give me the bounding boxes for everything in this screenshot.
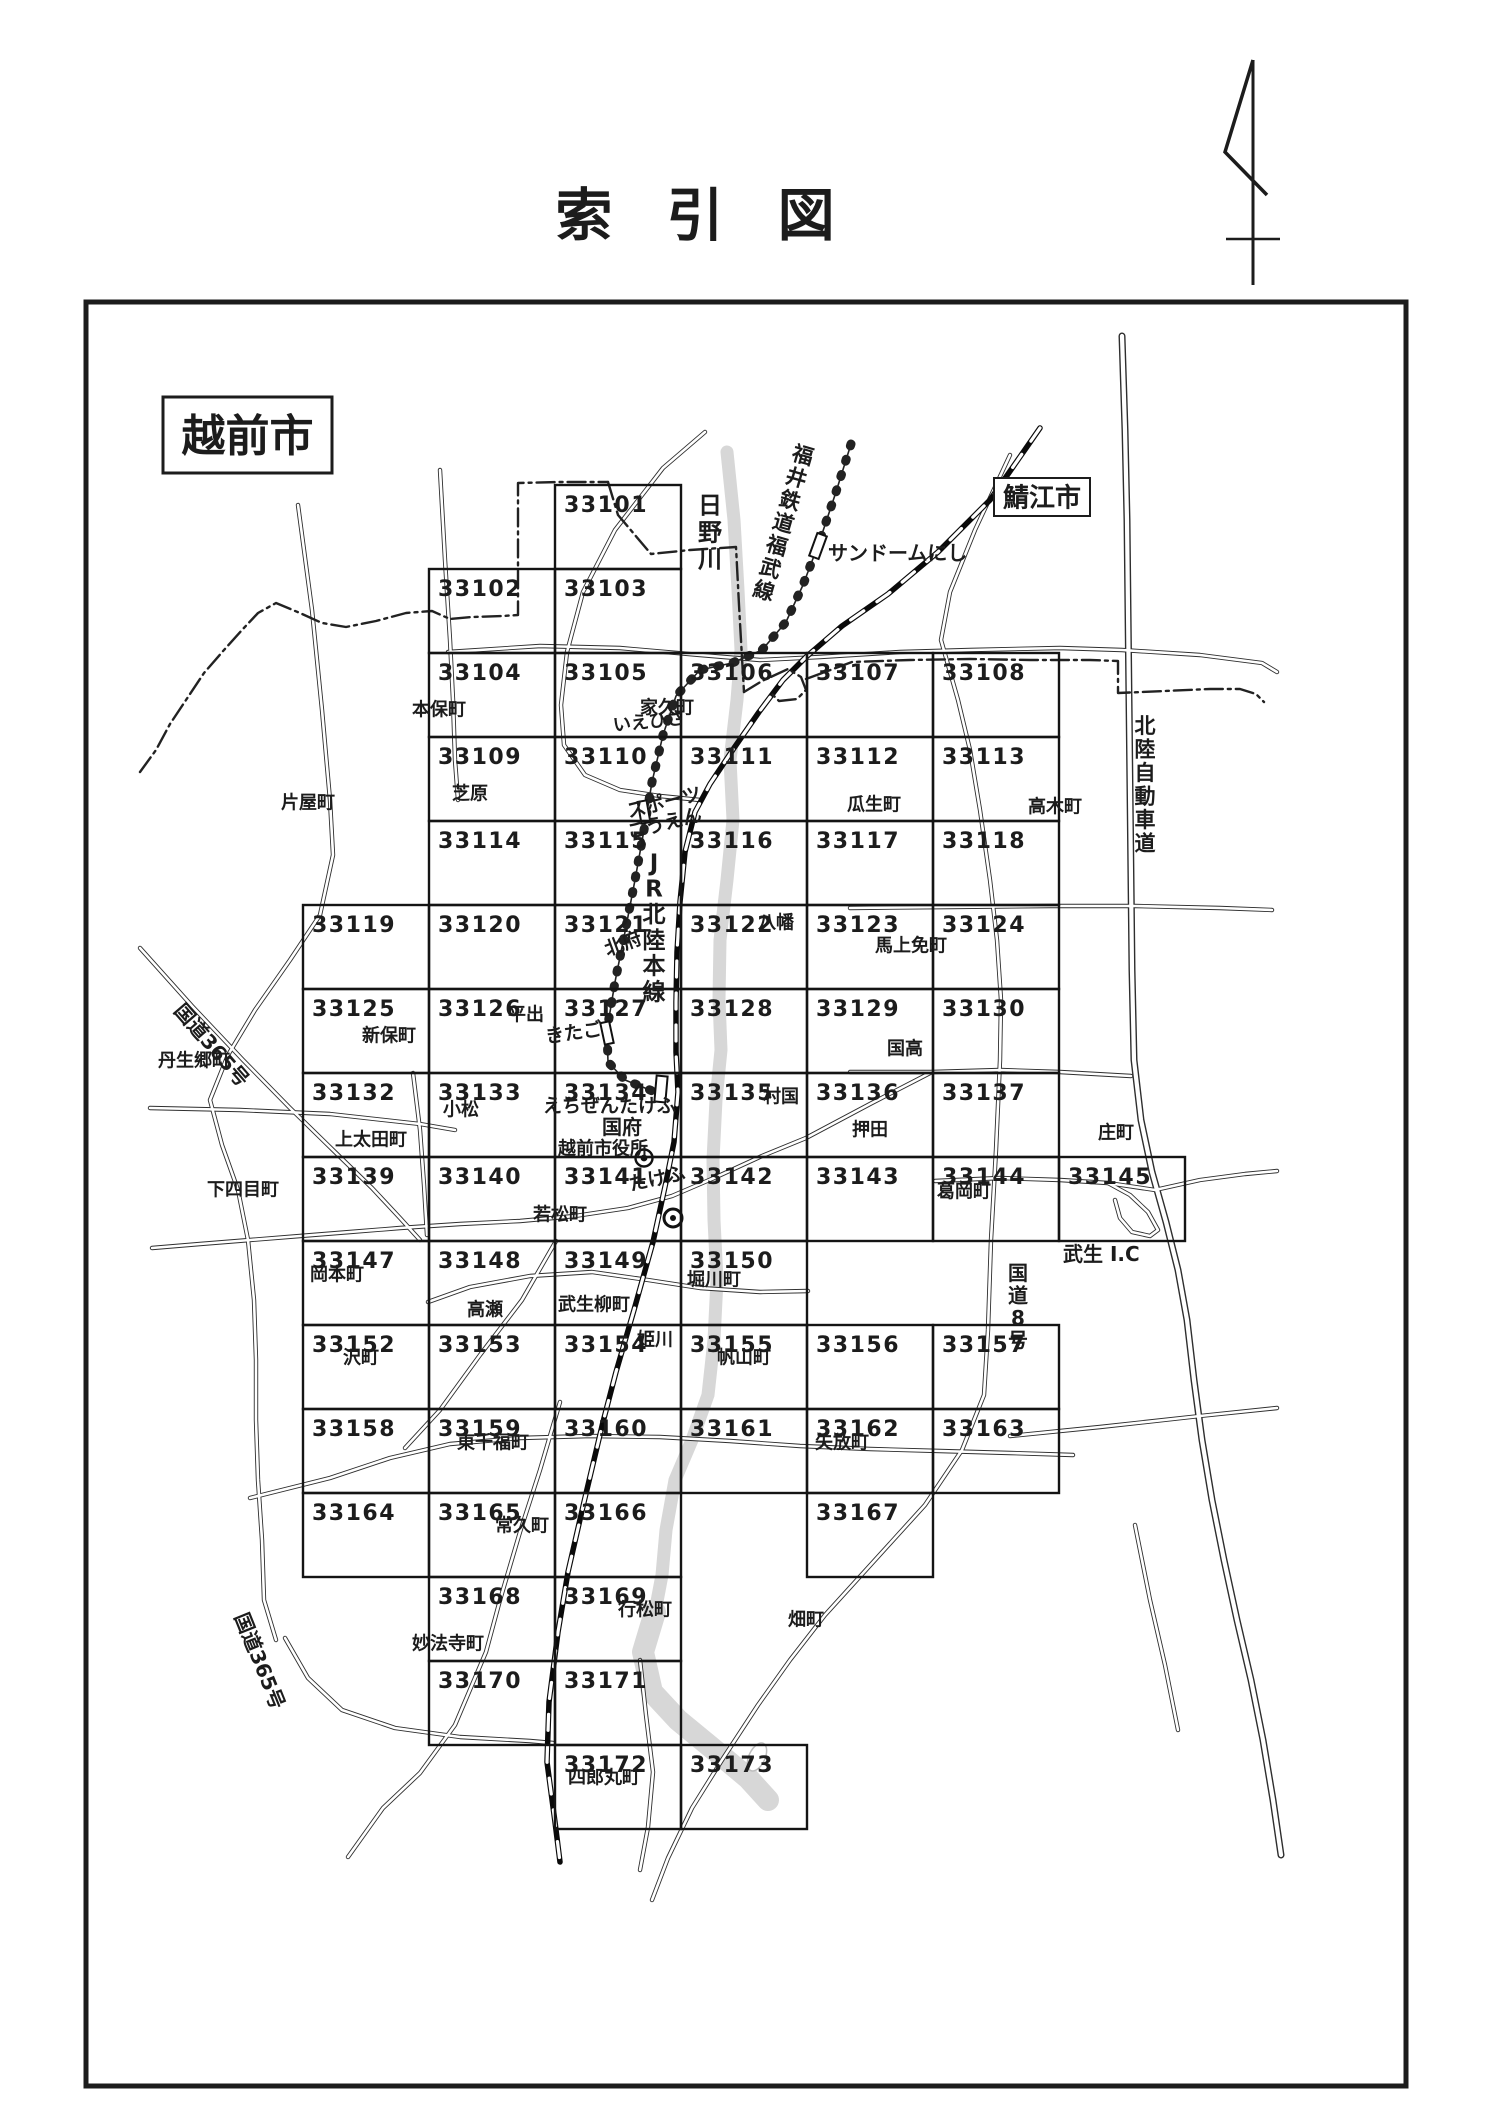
place-label: サンドームにし <box>828 541 967 565</box>
grid-cell-label-33109: 33109 <box>438 745 522 770</box>
grid-cell-label-33119: 33119 <box>312 913 396 938</box>
place-label: 瓜生町 <box>847 793 901 815</box>
place-label: 下四目町 <box>207 1179 279 1200</box>
svg-text:常久町: 常久町 <box>495 1514 549 1536</box>
place-label: 国道8号 <box>1008 1261 1028 1352</box>
svg-text:道: 道 <box>1135 832 1156 856</box>
svg-text:陸: 陸 <box>643 928 666 954</box>
grid-cell-label-33149: 33149 <box>564 1249 648 1274</box>
place-label: 葛岡町 <box>936 1181 991 1202</box>
svg-text:小松: 小松 <box>443 1098 479 1120</box>
place-label: 国府 <box>602 1115 642 1139</box>
place-label: 若松町 <box>532 1203 587 1225</box>
place-label: 八幡 <box>758 911 794 933</box>
place-label: 北陸自動車道 <box>1135 714 1156 856</box>
svg-text:北: 北 <box>1135 714 1156 738</box>
svg-text:新保町: 新保町 <box>362 1024 416 1046</box>
place-label: 上太田町 <box>335 1128 407 1150</box>
grid-cell-label-33173: 33173 <box>690 1753 774 1778</box>
svg-text:芝原: 芝原 <box>452 782 488 804</box>
svg-text:本: 本 <box>643 954 666 980</box>
svg-text:動: 動 <box>1135 784 1156 808</box>
place-label: 国高 <box>887 1037 923 1059</box>
svg-text:馬上免町: 馬上免町 <box>875 934 947 956</box>
svg-text:線: 線 <box>643 979 666 1006</box>
svg-text:川: 川 <box>698 545 722 573</box>
svg-text:瓜生町: 瓜生町 <box>847 793 901 815</box>
svg-text:国高: 国高 <box>887 1037 923 1059</box>
svg-text:野: 野 <box>698 518 722 546</box>
svg-text:村国: 村国 <box>763 1085 799 1107</box>
svg-text:行松町: 行松町 <box>617 1598 672 1620</box>
grid-cell-label-33158: 33158 <box>312 1417 396 1442</box>
grid-cell-label-33117: 33117 <box>816 829 900 854</box>
grid-cell-label-33171: 33171 <box>564 1669 648 1694</box>
svg-text:上太田町: 上太田町 <box>335 1128 407 1150</box>
place-label: 沢町 <box>343 1346 379 1368</box>
svg-text:片屋町: 片屋町 <box>281 791 335 813</box>
place-label: 丹生郷町 <box>158 1049 230 1071</box>
grid-cell-label-33106: 33106 <box>690 661 774 686</box>
place-label: 帆山町 <box>717 1346 771 1368</box>
svg-text:国: 国 <box>1008 1261 1028 1285</box>
svg-text:越前市役所: 越前市役所 <box>557 1137 648 1159</box>
place-label: 東千福町 <box>457 1431 529 1453</box>
grid-cell-label-33107: 33107 <box>816 661 900 686</box>
grid-cell-label-33170: 33170 <box>438 1669 522 1694</box>
grid-cell-label-33164: 33164 <box>312 1501 396 1526</box>
svg-text:沢町: 沢町 <box>343 1346 379 1368</box>
place-label: 姫川 <box>637 1328 673 1350</box>
grid-cell-label-33116: 33116 <box>690 829 774 854</box>
svg-text:下四目町: 下四目町 <box>207 1179 279 1200</box>
place-label: 本保町 <box>412 698 466 720</box>
grid-cell-label-33124: 33124 <box>942 913 1026 938</box>
grid-cell-label-33129: 33129 <box>816 997 900 1022</box>
place-label: 庄町 <box>1098 1121 1134 1143</box>
grid-cell-label-33135: 33135 <box>690 1081 774 1106</box>
grid-cell-label-33154: 33154 <box>564 1333 648 1358</box>
grid-cell-label-33148: 33148 <box>438 1249 522 1274</box>
place-label: 岡本町 <box>310 1263 364 1285</box>
svg-text:姫川: 姫川 <box>637 1328 673 1350</box>
place-label: 日野川 <box>698 492 722 574</box>
place-label: 妙法寺町 <box>412 1632 484 1654</box>
svg-text:四郎丸町: 四郎丸町 <box>568 1766 640 1788</box>
place-label: 矢放町 <box>815 1431 869 1453</box>
svg-text:日: 日 <box>698 492 722 520</box>
place-label: 武生 I.C <box>1063 1242 1140 1266</box>
place-label: 押田 <box>852 1118 888 1140</box>
grid-cell-label-33143: 33143 <box>816 1165 900 1190</box>
grid-cell-label-33111: 33111 <box>690 745 774 770</box>
city-box-label: 越前市 <box>182 411 314 462</box>
place-label: 常久町 <box>495 1514 549 1536</box>
svg-text:北: 北 <box>643 902 666 928</box>
grid-cell-label-33167: 33167 <box>816 1501 900 1526</box>
svg-text:J: J <box>648 851 659 877</box>
place-label: 高瀬 <box>467 1298 503 1320</box>
grid-cell-label-33103: 33103 <box>564 577 648 602</box>
svg-text:国府: 国府 <box>602 1115 642 1139</box>
grid-cell-label-33145: 33145 <box>1068 1165 1152 1190</box>
svg-text:東千福町: 東千福町 <box>457 1431 529 1453</box>
grid-cell-label-33160: 33160 <box>564 1417 648 1442</box>
grid-cell-label-33168: 33168 <box>438 1585 522 1610</box>
grid-cell-label-33112: 33112 <box>816 745 900 770</box>
city-box-label: 鯖江市 <box>1003 482 1081 513</box>
grid-cell-label-33125: 33125 <box>312 997 396 1022</box>
grid-cell-label-33137: 33137 <box>942 1081 1026 1106</box>
svg-text:押田: 押田 <box>852 1118 888 1140</box>
svg-text:道: 道 <box>1008 1283 1028 1307</box>
grid-cell-label-33161: 33161 <box>690 1417 774 1442</box>
svg-text:えちぜんたけふ: えちぜんたけふ <box>543 1095 676 1117</box>
svg-text:八幡: 八幡 <box>758 911 794 933</box>
grid-cell-label-33142: 33142 <box>690 1165 774 1190</box>
grid-cell-label-33140: 33140 <box>438 1165 522 1190</box>
grid-cell-label-33136: 33136 <box>816 1081 900 1106</box>
svg-text:高木町: 高木町 <box>1028 795 1082 817</box>
grid-cell-label-33128: 33128 <box>690 997 774 1022</box>
svg-text:矢放町: 矢放町 <box>815 1431 869 1453</box>
grid-cell-label-33127: 33127 <box>564 997 648 1022</box>
grid-cell-label-33139: 33139 <box>312 1165 396 1190</box>
grid-cell-label-33105: 33105 <box>564 661 648 686</box>
svg-text:自: 自 <box>1135 761 1156 785</box>
svg-text:若松町: 若松町 <box>532 1203 587 1225</box>
grid-cell-label-33120: 33120 <box>438 913 522 938</box>
svg-text:平出: 平出 <box>508 1003 544 1025</box>
svg-text:サンドームにし: サンドームにし <box>828 541 967 565</box>
svg-text:車: 車 <box>1135 808 1156 832</box>
place-label: 馬上免町 <box>875 934 947 956</box>
grid-cell-label-33132: 33132 <box>312 1081 396 1106</box>
svg-text:葛岡町: 葛岡町 <box>936 1181 991 1202</box>
svg-text:帆山町: 帆山町 <box>717 1346 771 1368</box>
svg-text:本保町: 本保町 <box>412 698 466 720</box>
place-label: 片屋町 <box>281 791 335 813</box>
svg-text:畑町: 畑町 <box>788 1609 824 1630</box>
svg-text:丹生郷町: 丹生郷町 <box>158 1049 230 1071</box>
station-takefu-jr-dot <box>670 1215 676 1221</box>
svg-text:庄町: 庄町 <box>1098 1121 1134 1143</box>
grid-cell-label-33101: 33101 <box>564 493 648 518</box>
grid-cell-label-33130: 33130 <box>942 997 1026 1022</box>
place-label: 堀川町 <box>687 1269 741 1290</box>
grid-cell-label-33118: 33118 <box>942 829 1026 854</box>
svg-text:高瀬: 高瀬 <box>467 1298 503 1320</box>
place-label: 畑町 <box>788 1609 824 1630</box>
svg-text:8: 8 <box>1011 1306 1025 1330</box>
grid-cell-label-33166: 33166 <box>564 1501 648 1526</box>
place-label: 行松町 <box>617 1598 672 1620</box>
place-label: えちぜんたけふ <box>543 1095 676 1117</box>
grid-cell-label-33104: 33104 <box>438 661 522 686</box>
svg-text:岡本町: 岡本町 <box>310 1263 364 1285</box>
place-label: 高木町 <box>1028 795 1082 817</box>
grid-cell-label-33113: 33113 <box>942 745 1026 770</box>
svg-text:武生柳町: 武生柳町 <box>558 1293 630 1315</box>
grid-cell-label-33163: 33163 <box>942 1417 1026 1442</box>
grid-cell-label-33153: 33153 <box>438 1333 522 1358</box>
grid-cell-label-33114: 33114 <box>438 829 522 854</box>
svg-text:陸: 陸 <box>1135 737 1156 761</box>
place-label: 四郎丸町 <box>568 1766 640 1788</box>
grid-cell-label-33156: 33156 <box>816 1333 900 1358</box>
place-label: 武生柳町 <box>558 1293 630 1315</box>
place-label: 平出 <box>508 1003 544 1025</box>
svg-text:妙法寺町: 妙法寺町 <box>412 1632 484 1654</box>
grid-cell-label-33108: 33108 <box>942 661 1026 686</box>
place-label: 芝原 <box>452 782 488 804</box>
grid-cell-label-33110: 33110 <box>564 745 648 770</box>
place-label: 新保町 <box>362 1024 416 1046</box>
place-label: 小松 <box>443 1098 479 1120</box>
svg-text:R: R <box>645 876 663 902</box>
svg-text:武生 I.C: 武生 I.C <box>1063 1242 1140 1266</box>
grid-cell-label-33102: 33102 <box>438 577 522 602</box>
place-label: 越前市役所 <box>557 1137 648 1159</box>
place-label: 村国 <box>763 1085 799 1107</box>
svg-text:堀川町: 堀川町 <box>687 1269 741 1290</box>
page-title: 索引図 <box>0 170 1390 252</box>
grid-cell-label-33123: 33123 <box>816 913 900 938</box>
map-border <box>86 302 1406 2086</box>
svg-text:号: 号 <box>1008 1328 1028 1352</box>
index-map: 3310133102331033310433105331063310733108… <box>0 0 1500 2121</box>
